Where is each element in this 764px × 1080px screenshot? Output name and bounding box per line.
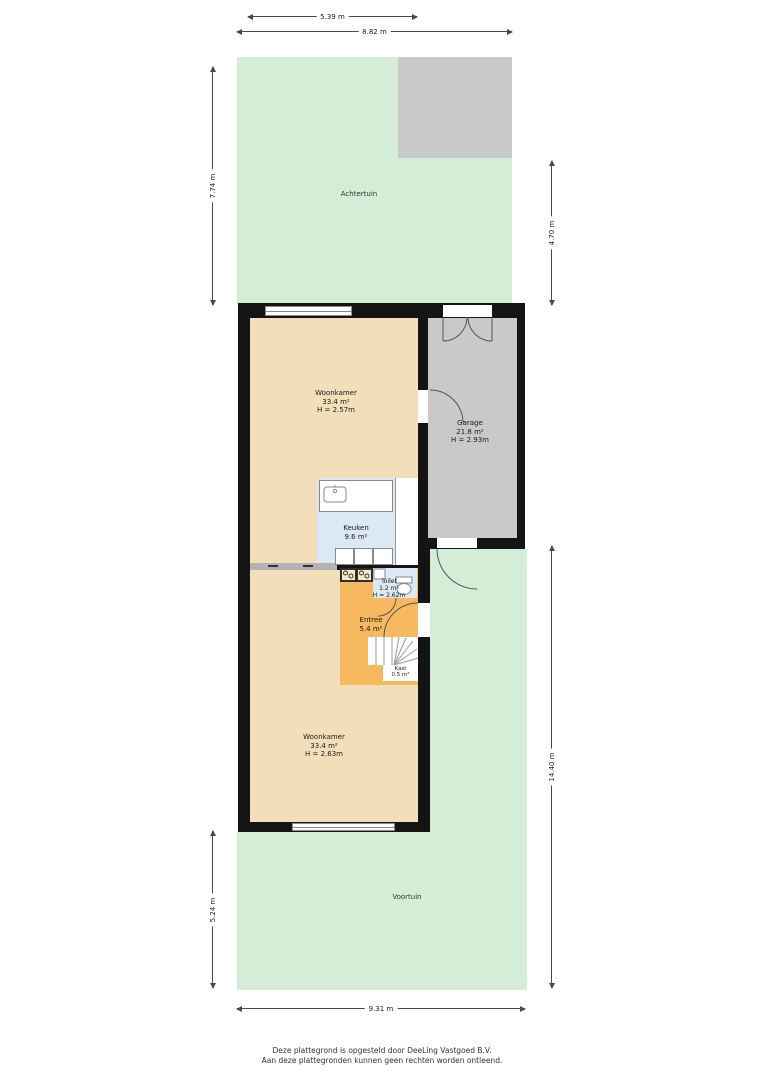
dimension-top-inner-label: 5.39 m (316, 13, 349, 21)
footer-disclaimer: Deze plattegrond is opgesteld door DeeLi… (0, 1046, 764, 1065)
toilet-name: Toilet (361, 578, 417, 585)
living-upper-area: 33.4 m² (276, 398, 396, 407)
dimension-bottom: 9.31 m (237, 1004, 525, 1013)
floorplan-page: 5.39 m 8.82 m 7.74 m 4.70 m 14.40 m 5.24… (0, 0, 764, 1080)
garage-label: Garage 21.8 m² H = 2.93m (412, 419, 528, 445)
living-upper-height: H = 2.57m (276, 406, 396, 415)
living-lower-name: Woonkamer (264, 733, 384, 742)
dimension-right-back-label: 4.70 m (548, 217, 556, 250)
garage-door-right-arc (468, 317, 492, 341)
garage-name: Garage (412, 419, 528, 428)
dimension-left-back-label: 7.74 m (209, 170, 217, 203)
living-lower-label: Woonkamer 33.4 m² H = 2.63m (264, 733, 384, 759)
closet-area: 0.5 m² (383, 672, 418, 678)
front-garden-label: Voortuin (347, 893, 467, 901)
living-lower-height: H = 2.63m (264, 750, 384, 759)
garage-area: 21.8 m² (412, 428, 528, 437)
dimension-right-front: 14.40 m (547, 546, 556, 988)
dimension-right-front-label: 14.40 m (548, 748, 556, 785)
stair-treads (376, 637, 418, 665)
kitchen-area: 9.6 m² (318, 533, 394, 542)
living-upper-label: Woonkamer 33.4 m² H = 2.57m (276, 389, 396, 415)
dimension-left-back: 7.74 m (208, 67, 217, 305)
dimension-top-inner: 5.39 m (248, 12, 417, 21)
garage-to-garden-door-arc (437, 549, 477, 589)
dimension-left-front: 5.24 m (208, 831, 217, 988)
entry-area: 5.4 m² (333, 625, 409, 634)
closet-label: Kast 0.5 m² (383, 666, 418, 678)
kitchen-sink-icon (324, 485, 346, 502)
garage-height: H = 2.93m (412, 436, 528, 445)
garage-door-left-arc (443, 317, 467, 341)
entry-name: Entree (333, 616, 409, 625)
dimension-bottom-label: 9.31 m (365, 1005, 398, 1013)
kitchen-label: Keuken 9.6 m² (318, 524, 394, 541)
toilet-height: H = 2.62m (361, 592, 417, 599)
back-garden-label: Achtertuin (299, 190, 419, 198)
footer-line-1: Deze plattegrond is opgesteld door DeeLi… (0, 1046, 764, 1056)
toilet-label: Toilet 1.2 m² H = 2.62m (361, 578, 417, 599)
living-upper-name: Woonkamer (276, 389, 396, 398)
living-lower-area: 33.4 m² (264, 742, 384, 751)
dimension-left-front-label: 5.24 m (209, 893, 217, 926)
dimension-right-back: 4.70 m (547, 161, 556, 305)
entry-label: Entree 5.4 m² (333, 616, 409, 633)
dimension-top-outer: 8.82 m (237, 27, 512, 36)
dimension-top-outer-label: 8.82 m (358, 28, 391, 36)
footer-line-2: Aan deze plattegronden kunnen geen recht… (0, 1056, 764, 1066)
kitchen-name: Keuken (318, 524, 394, 533)
toilet-area: 1.2 m² (361, 585, 417, 592)
